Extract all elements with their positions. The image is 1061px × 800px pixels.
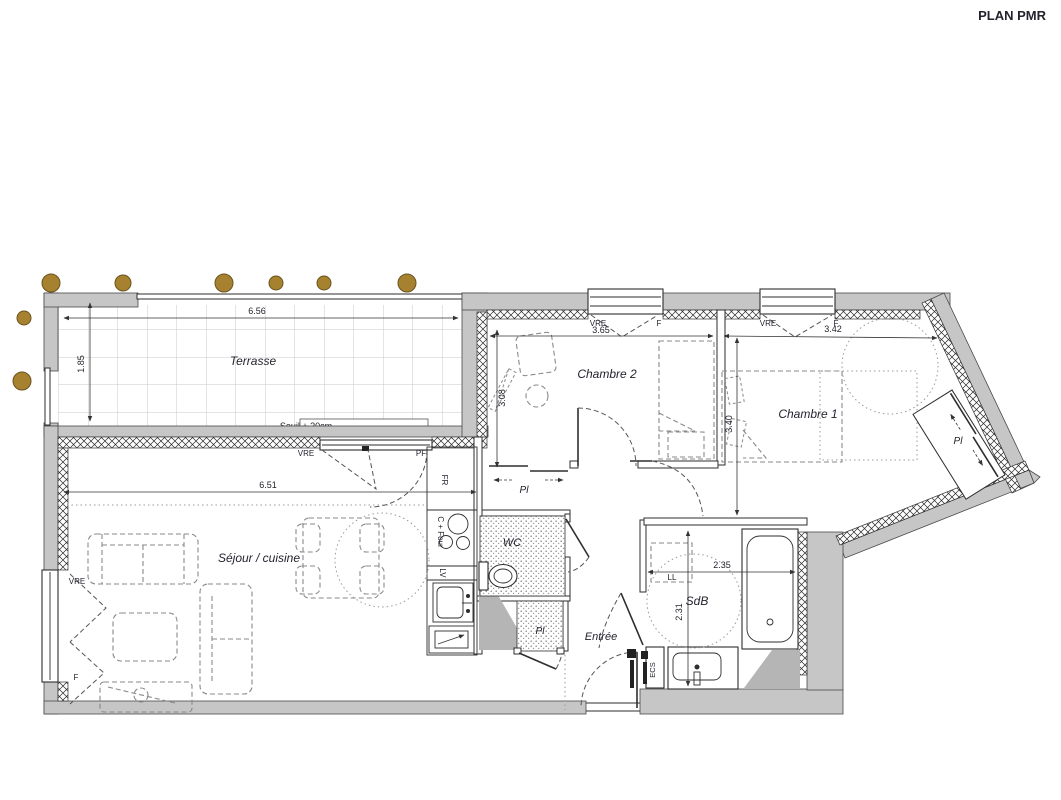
bedroom2 <box>488 332 714 466</box>
label-sejour: Séjour / cuisine <box>218 551 300 565</box>
wall-right-vertical <box>807 532 843 690</box>
hatch-strip <box>58 682 68 701</box>
label-entree: Entrée <box>585 631 617 643</box>
desk-chair <box>526 385 548 407</box>
post <box>115 275 131 291</box>
kitchen <box>427 447 477 655</box>
label-ecs: ECS <box>648 662 657 677</box>
label-chambre1: Chambre 1 <box>778 407 837 421</box>
post <box>215 274 233 292</box>
floor-plan-page: Seuil + 20cm <box>0 0 1061 800</box>
wall-chambre2-south-b <box>638 461 718 468</box>
hatch-strip <box>835 310 920 319</box>
pl-door-leaf <box>519 653 556 669</box>
toilet-tank <box>479 562 488 590</box>
entry-door-swing <box>581 652 637 708</box>
wall-wc-right <box>565 557 570 600</box>
coffee-table <box>113 613 177 661</box>
washbasin <box>668 647 738 689</box>
bed-fold <box>659 413 695 431</box>
door-hardware <box>627 649 636 658</box>
kitchen-appliance <box>429 626 474 653</box>
chair <box>296 566 320 594</box>
basin-tap <box>695 665 700 670</box>
sofa-side <box>200 584 252 694</box>
burner <box>448 514 468 534</box>
wall-top <box>462 293 950 310</box>
bathtub <box>742 529 798 649</box>
label-f-west: F <box>74 673 79 682</box>
label-vre-chambre1: VRE <box>760 319 776 328</box>
dining-table <box>303 518 379 598</box>
door-swing-pf <box>370 450 427 507</box>
label-wc: WC <box>503 537 521 549</box>
label-pl-chambre1: Pl <box>954 436 964 447</box>
door-hardware <box>641 651 648 659</box>
label-ll: LL <box>668 573 677 582</box>
post <box>13 372 31 390</box>
window-frame <box>588 289 663 314</box>
terrace-wall-top <box>44 293 138 307</box>
label-f-chambre2: F <box>657 319 662 328</box>
sofa-main <box>88 534 198 584</box>
page-title: PLAN PMR <box>978 8 1047 23</box>
wall-se-diagonal <box>840 470 1034 558</box>
chambre1-door-swing <box>652 461 703 516</box>
appliance-arrow <box>438 635 464 644</box>
bed-fold <box>743 430 766 458</box>
label-fr: FR <box>440 475 449 486</box>
label-vre-sejour: VRE <box>298 449 314 458</box>
hatch-strip <box>663 310 760 319</box>
terrace-railing-top <box>137 294 462 299</box>
burner <box>457 537 470 550</box>
sofa-outline <box>88 534 198 584</box>
faucet-dot <box>466 609 470 613</box>
tv-screen <box>108 687 175 703</box>
toilet-bowl <box>489 565 517 588</box>
floor-plan: Seuil + 20cm <box>0 0 1061 800</box>
wall-sdb-top <box>644 518 807 525</box>
post <box>398 274 416 292</box>
label-pl-entree: Pl <box>536 626 546 637</box>
hatch-strip <box>58 437 320 448</box>
chair <box>296 524 320 552</box>
window-frame <box>760 289 835 314</box>
dim-label-chambre1-depth: 3.40 <box>724 415 734 433</box>
desk-chambre2 <box>515 332 556 377</box>
label-sdb: SdB <box>686 594 709 608</box>
hatch-strip <box>477 312 487 437</box>
dim-label-terrasse-width: 6.56 <box>248 306 266 316</box>
wc-door-swing <box>568 557 589 572</box>
wall-pl-entree-right <box>563 601 568 651</box>
bathtub-outline <box>742 529 798 649</box>
wall-sejour-top <box>44 426 488 437</box>
pillow-shape <box>725 376 744 404</box>
dim-label-chambre2-width: 3.65 <box>592 325 610 335</box>
pl-door-swing <box>556 653 562 669</box>
wall-pl-wc <box>482 510 570 516</box>
dining-set <box>296 518 384 598</box>
dim-chambre1-width <box>724 336 937 338</box>
living-room <box>58 505 429 712</box>
wall-chambre1-chambre2 <box>717 310 725 465</box>
duct-gaine-sdb <box>744 650 800 688</box>
chambre2-door-swing <box>578 408 636 466</box>
wc-door-leaf <box>566 519 589 557</box>
hatch-strip <box>58 448 68 570</box>
turning-circle-chambre1 <box>842 318 938 414</box>
label-pf-sejour: PF <box>416 449 426 458</box>
kitchen-counter <box>427 447 477 655</box>
door-hardware <box>643 662 647 684</box>
terrace-railing-left <box>45 368 50 425</box>
bed-chambre2 <box>659 341 714 459</box>
post <box>17 311 31 325</box>
label-pl-chambre2: Pl <box>520 485 530 496</box>
door-jamb <box>557 648 564 654</box>
dim-label-sdb-depth: 2.31 <box>674 603 684 621</box>
hatch-strip <box>487 310 588 319</box>
chair <box>360 566 384 594</box>
dim-label-sejour-width: 6.51 <box>259 480 277 490</box>
label-vre-west: VRE <box>69 577 85 586</box>
label-cfour: C + Four <box>436 516 445 548</box>
casement-swing <box>322 450 376 489</box>
post <box>317 276 331 290</box>
chair <box>360 524 384 552</box>
post <box>42 274 60 292</box>
wall-sdb-left <box>640 520 646 592</box>
sink-outline <box>433 583 473 622</box>
dim-label-chambre1-width: 3.42 <box>824 324 842 334</box>
pillow <box>725 376 744 404</box>
bed-footboard <box>668 432 704 457</box>
desk <box>515 332 556 377</box>
closet-pl-chambre2 <box>489 466 568 480</box>
post <box>269 276 283 290</box>
kitchen-sink <box>433 583 473 622</box>
wall-left-upper <box>44 426 58 570</box>
dim-label-sdb-width: 2.35 <box>713 560 731 570</box>
door-hardware <box>630 660 634 688</box>
wall-chambre2-south-a <box>570 461 578 468</box>
sink-bowl <box>437 587 463 618</box>
wall-bottom-right <box>640 689 843 714</box>
bed-outline <box>659 341 714 459</box>
wc-room <box>479 516 589 596</box>
dim-label-terrasse-depth: 1.85 <box>76 355 86 373</box>
label-chambre2: Chambre 2 <box>577 367 637 381</box>
label-terrasse: Terrasse <box>230 354 277 368</box>
faucet-dot <box>466 594 470 598</box>
sdb-door-leaf <box>621 593 643 645</box>
label-lv: LV <box>438 568 447 578</box>
dim-label-chambre2-depth: 3.08 <box>497 389 507 407</box>
